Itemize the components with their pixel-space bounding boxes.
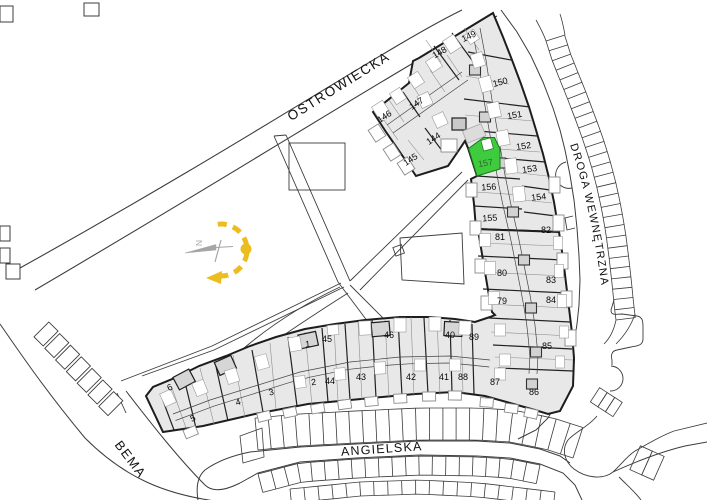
svg-text:42: 42 <box>406 372 416 382</box>
svg-text:156: 156 <box>481 181 497 192</box>
svg-text:1: 1 <box>305 339 311 349</box>
svg-text:89: 89 <box>469 332 479 342</box>
svg-text:44: 44 <box>325 376 335 386</box>
svg-text:41: 41 <box>439 372 449 382</box>
svg-text:43: 43 <box>356 372 366 382</box>
svg-text:81: 81 <box>495 232 505 242</box>
svg-text:46: 46 <box>384 330 394 340</box>
svg-text:82: 82 <box>541 225 551 235</box>
svg-text:153: 153 <box>521 163 537 175</box>
svg-text:79: 79 <box>497 296 507 306</box>
svg-text:86: 86 <box>529 387 539 397</box>
svg-text:80: 80 <box>497 268 507 278</box>
svg-text:87: 87 <box>490 377 500 387</box>
svg-text:45: 45 <box>322 334 332 344</box>
svg-text:85: 85 <box>542 341 552 351</box>
svg-text:84: 84 <box>546 295 556 305</box>
svg-text:83: 83 <box>546 275 556 285</box>
svg-text:N: N <box>194 240 204 246</box>
svg-text:152: 152 <box>515 140 531 152</box>
svg-text:88: 88 <box>458 372 468 382</box>
svg-text:155: 155 <box>482 212 498 223</box>
svg-text:40: 40 <box>445 330 455 340</box>
svg-text:154: 154 <box>531 191 547 203</box>
